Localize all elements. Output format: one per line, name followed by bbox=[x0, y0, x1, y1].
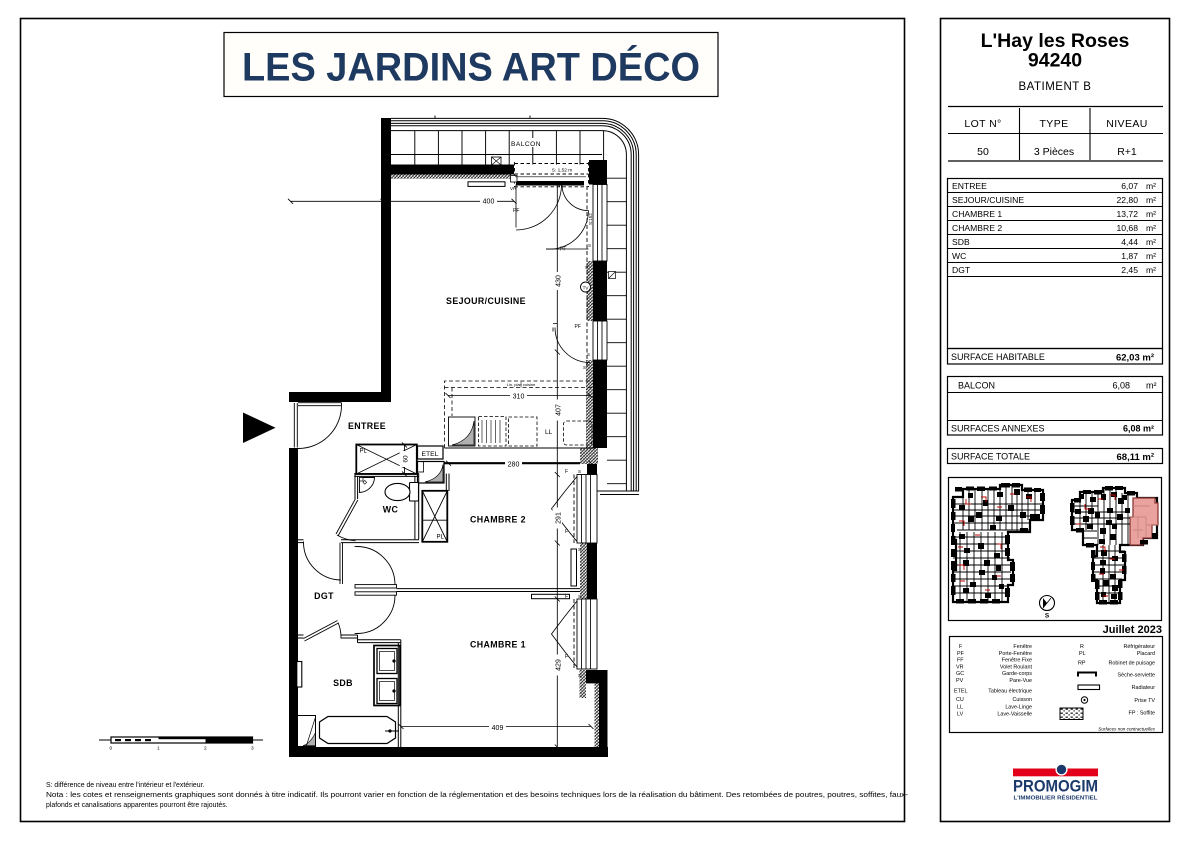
svg-text:SEJOUR/CUISINE: SEJOUR/CUISINE bbox=[446, 296, 526, 306]
svg-text:PL: PL bbox=[437, 535, 445, 541]
svg-text:LOT N°: LOT N° bbox=[964, 118, 1001, 130]
svg-text:Prise TV: Prise TV bbox=[1134, 698, 1155, 704]
svg-text:m²: m² bbox=[1146, 209, 1156, 219]
svg-text:S: S bbox=[578, 673, 581, 678]
svg-text:PF: PF bbox=[575, 324, 581, 330]
svg-text:S: 1,52 m: S: 1,52 m bbox=[552, 168, 573, 174]
svg-text:CHAMBRE 1: CHAMBRE 1 bbox=[952, 209, 1002, 219]
svg-text:S: différence de niveau entre: S: différence de niveau entre l'intérieu… bbox=[46, 782, 204, 789]
svg-text:S: S bbox=[588, 243, 591, 248]
svg-text:Volet Roulant: Volet Roulant bbox=[1000, 664, 1033, 670]
svg-text:6,07: 6,07 bbox=[1121, 181, 1138, 191]
svg-text:TV: TV bbox=[583, 286, 590, 291]
svg-text:62,03 m²: 62,03 m² bbox=[1116, 353, 1154, 364]
svg-text:291: 291 bbox=[556, 512, 563, 524]
svg-text:Lave-Linge: Lave-Linge bbox=[1005, 705, 1032, 711]
svg-text:PV: PV bbox=[956, 678, 964, 684]
svg-text:ETEL: ETEL bbox=[422, 451, 439, 458]
svg-text:280: 280 bbox=[508, 462, 520, 469]
svg-text:ENTREE: ENTREE bbox=[952, 181, 987, 191]
svg-text:NIVEAU: NIVEAU bbox=[1106, 118, 1148, 130]
svg-text:LL: LL bbox=[545, 429, 553, 436]
svg-text:Tableau électrique: Tableau électrique bbox=[988, 689, 1032, 695]
svg-text:S: S bbox=[578, 547, 581, 552]
svg-text:FP : Soffite: FP : Soffite bbox=[1129, 711, 1155, 717]
svg-text:SURFACE TOTALE: SURFACE TOTALE bbox=[951, 452, 1030, 462]
svg-text:Placard: Placard bbox=[1137, 651, 1155, 657]
svg-text:WC: WC bbox=[383, 505, 399, 515]
svg-text:LL: LL bbox=[957, 705, 963, 711]
svg-text:plafonds et canalisations appa: plafonds et canalisations apparentes pou… bbox=[46, 802, 228, 809]
svg-text:PROMOGIM: PROMOGIM bbox=[1013, 778, 1098, 796]
svg-text:CHAMBRE 1: CHAMBRE 1 bbox=[470, 640, 526, 650]
svg-text:F: F bbox=[565, 594, 568, 600]
svg-text:429: 429 bbox=[556, 659, 563, 671]
svg-text:Fenêtre: Fenêtre bbox=[1013, 644, 1032, 650]
svg-text:VR: VR bbox=[956, 664, 964, 670]
svg-text:Sèche-serviette: Sèche-serviette bbox=[1118, 673, 1155, 679]
svg-text:BALCON: BALCON bbox=[511, 141, 541, 148]
svg-text:PL: PL bbox=[1079, 651, 1086, 657]
svg-text:F: F bbox=[565, 529, 568, 535]
svg-text:Radiateur: Radiateur bbox=[1132, 685, 1156, 691]
svg-text:1,87: 1,87 bbox=[1121, 251, 1138, 261]
svg-text:DGT: DGT bbox=[314, 591, 334, 601]
svg-text:Fenêtre Fixe: Fenêtre Fixe bbox=[1002, 658, 1032, 664]
svg-text:400: 400 bbox=[483, 199, 495, 206]
svg-text:RP: RP bbox=[1078, 661, 1086, 667]
svg-text:CHAMBRE 2: CHAMBRE 2 bbox=[952, 223, 1002, 233]
svg-text:R: R bbox=[1080, 644, 1084, 650]
svg-text:PF: PF bbox=[513, 208, 519, 214]
svg-text:F: F bbox=[565, 469, 568, 475]
svg-text:m²: m² bbox=[1146, 237, 1156, 247]
svg-text:6,08: 6,08 bbox=[1112, 381, 1130, 391]
svg-text:CU: CU bbox=[956, 697, 964, 703]
svg-text:Juillet 2023: Juillet 2023 bbox=[1103, 624, 1162, 636]
svg-text:S: S bbox=[578, 469, 581, 474]
svg-text:6,08 m²: 6,08 m² bbox=[1123, 424, 1154, 434]
svg-text:SURFACES ANNEXES: SURFACES ANNEXES bbox=[951, 424, 1045, 434]
svg-text:S: S bbox=[583, 365, 586, 370]
svg-text:CHAMBRE 2: CHAMBRE 2 bbox=[470, 515, 526, 525]
svg-text:S: S bbox=[578, 594, 581, 599]
svg-text:3: 3 bbox=[251, 746, 254, 752]
svg-text:Cuisson: Cuisson bbox=[1013, 697, 1032, 703]
svg-text:PF: PF bbox=[957, 651, 965, 657]
svg-text:Porte-Fenêtre: Porte-Fenêtre bbox=[999, 651, 1032, 657]
svg-text:LES JARDINS ART DÉCO: LES JARDINS ART DÉCO bbox=[242, 45, 700, 90]
svg-text:Robinet de puisage: Robinet de puisage bbox=[1109, 661, 1155, 667]
svg-text:BATIMENT B: BATIMENT B bbox=[1019, 81, 1092, 93]
svg-text:TYPE: TYPE bbox=[1039, 118, 1068, 130]
svg-text:430: 430 bbox=[556, 275, 563, 287]
svg-text:WC: WC bbox=[952, 251, 966, 261]
svg-text:ETEL: ETEL bbox=[954, 689, 967, 695]
svg-text:Pare-Vue: Pare-Vue bbox=[1009, 678, 1032, 684]
svg-text:13,72: 13,72 bbox=[1116, 209, 1138, 219]
svg-text:m²: m² bbox=[1146, 223, 1156, 233]
svg-text:PF: PF bbox=[560, 247, 566, 253]
svg-text:FF: FF bbox=[957, 658, 964, 664]
svg-text:407: 407 bbox=[556, 404, 563, 416]
svg-text:S:152: S:152 bbox=[588, 213, 593, 225]
svg-text:Nota : les cotes et renseignem: Nota : les cotes et renseignements graph… bbox=[46, 792, 908, 799]
svg-text:SDB: SDB bbox=[952, 237, 970, 247]
svg-text:L'IMMOBILIER RÉSIDENTIEL: L'IMMOBILIER RÉSIDENTIEL bbox=[1014, 794, 1098, 802]
svg-text:Lin. plan cuisine: Lin. plan cuisine bbox=[507, 382, 536, 387]
svg-text:LV: LV bbox=[957, 712, 964, 718]
svg-text:S: S bbox=[585, 265, 588, 270]
svg-text:GC: GC bbox=[956, 671, 964, 677]
svg-text:Réfrigérateur: Réfrigérateur bbox=[1124, 644, 1156, 650]
svg-text:10,68: 10,68 bbox=[1116, 223, 1138, 233]
svg-text:310: 310 bbox=[513, 394, 525, 401]
svg-text:4,44: 4,44 bbox=[1121, 237, 1138, 247]
svg-text:DGT: DGT bbox=[952, 265, 971, 275]
svg-text:2: 2 bbox=[204, 746, 207, 752]
svg-text:m²: m² bbox=[1146, 181, 1156, 191]
svg-text:Lave-Vaisselle: Lave-Vaisselle bbox=[997, 712, 1032, 718]
svg-text:SDB: SDB bbox=[333, 678, 353, 688]
svg-text:3 Pièces: 3 Pièces bbox=[1034, 146, 1074, 158]
svg-text:ENTREE: ENTREE bbox=[348, 421, 386, 431]
svg-text:S: S bbox=[587, 352, 590, 357]
svg-text:60: 60 bbox=[403, 455, 410, 463]
svg-text:m²: m² bbox=[1146, 265, 1156, 275]
svg-text:S: S bbox=[1045, 613, 1050, 620]
svg-text:SEJOUR/CUISINE: SEJOUR/CUISINE bbox=[952, 195, 1024, 205]
svg-text:m²: m² bbox=[1146, 251, 1156, 261]
svg-text:0: 0 bbox=[110, 746, 113, 752]
svg-text:50: 50 bbox=[977, 146, 989, 158]
svg-text:R+1: R+1 bbox=[1117, 146, 1137, 158]
svg-text:F: F bbox=[565, 654, 568, 660]
svg-text:409: 409 bbox=[492, 725, 504, 732]
svg-text:m²: m² bbox=[1146, 195, 1156, 205]
svg-text:94240: 94240 bbox=[1028, 50, 1082, 72]
svg-text:68,11 m²: 68,11 m² bbox=[1117, 452, 1155, 463]
svg-text:1: 1 bbox=[157, 746, 160, 752]
svg-text:m²: m² bbox=[1146, 381, 1157, 391]
svg-text:2,45: 2,45 bbox=[1121, 265, 1138, 275]
svg-text:22,80: 22,80 bbox=[1116, 195, 1138, 205]
svg-text:SURFACE HABITABLE: SURFACE HABITABLE bbox=[951, 352, 1045, 362]
svg-text:Garde-corps: Garde-corps bbox=[1002, 671, 1032, 677]
svg-text:PL: PL bbox=[360, 449, 368, 455]
svg-text:Surfaces non contractuelles: Surfaces non contractuelles bbox=[1098, 727, 1155, 732]
svg-text:BALCON: BALCON bbox=[958, 381, 995, 391]
